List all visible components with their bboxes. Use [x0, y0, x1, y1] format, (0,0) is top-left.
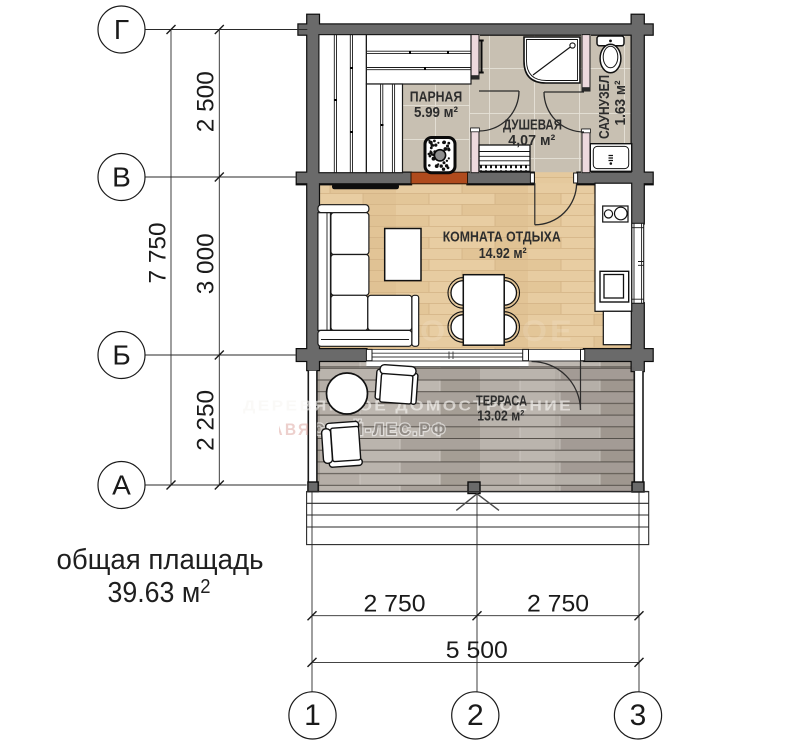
- svg-text:13.02 м²: 13.02 м²: [477, 408, 524, 425]
- svg-text:А: А: [112, 470, 131, 501]
- svg-text:4,07 м²: 4,07 м²: [508, 132, 555, 149]
- svg-text:14.92 м²: 14.92 м²: [479, 245, 527, 262]
- svg-text:САУНУЗЕЛ: САУНУЗЕЛ: [596, 75, 613, 139]
- svg-text:1.63 м²: 1.63 м²: [612, 80, 629, 125]
- svg-text:39.63 м2: 39.63 м2: [108, 576, 211, 609]
- svg-text:ПАРНАЯ: ПАРНАЯ: [410, 89, 463, 106]
- svg-text:ДУШЕВАЯ: ДУШЕВАЯ: [503, 117, 562, 134]
- svg-text:3: 3: [630, 699, 647, 732]
- svg-text:КОМНАТА ОТДЫХА: КОМНАТА ОТДЫХА: [443, 229, 561, 246]
- svg-text:5 500: 5 500: [446, 637, 508, 664]
- svg-text:3 000: 3 000: [193, 233, 220, 294]
- svg-text:2: 2: [467, 699, 484, 732]
- svg-text:7 750: 7 750: [145, 223, 172, 284]
- svg-text:2 500: 2 500: [193, 71, 220, 132]
- svg-text:2 750: 2 750: [364, 591, 426, 618]
- svg-text:5.99 м²: 5.99 м²: [414, 104, 458, 121]
- svg-text:В: В: [112, 162, 131, 193]
- svg-text:общая плащадь: общая плащадь: [57, 544, 264, 576]
- svg-text:Б: Б: [112, 340, 130, 371]
- svg-text:2 750: 2 750: [527, 591, 589, 618]
- svg-text:Г: Г: [114, 14, 129, 45]
- svg-text:2 250: 2 250: [193, 390, 220, 451]
- svg-text:1: 1: [304, 699, 321, 732]
